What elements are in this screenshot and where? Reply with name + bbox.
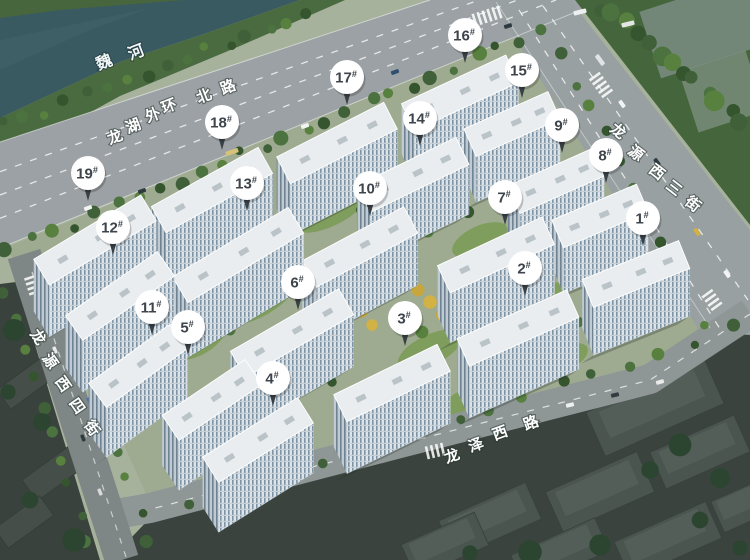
tree — [732, 540, 747, 555]
tree — [238, 30, 251, 43]
tree — [162, 60, 173, 71]
tree — [155, 183, 166, 194]
tree — [280, 18, 291, 29]
golden-tree — [423, 295, 437, 309]
tree — [318, 117, 330, 129]
tree — [409, 83, 420, 94]
tree — [514, 37, 525, 48]
tree — [62, 528, 85, 551]
scene-shape: 17 — [335, 70, 352, 87]
tree — [227, 41, 236, 50]
scene-shape: 19 — [76, 166, 93, 183]
tree — [423, 71, 437, 85]
tree — [727, 319, 740, 332]
tree — [183, 55, 193, 65]
tree — [685, 71, 698, 84]
scene-shape: # — [352, 69, 357, 79]
scene-shape: 3 — [397, 311, 405, 328]
tree — [29, 372, 39, 382]
tree — [490, 42, 498, 50]
scene-shape: 8 — [598, 148, 606, 165]
tree — [199, 42, 208, 51]
scene-shape: # — [189, 319, 194, 329]
scene-shape: # — [563, 117, 568, 127]
scene-shape: 12 — [101, 220, 118, 237]
tree — [625, 362, 635, 372]
tree — [0, 384, 15, 399]
tree — [586, 369, 596, 379]
site-plan-rendering: 龙湖外环北路龙源西三街龙源西四街龙泽西路魏河 16#15#17#14#18#9#… — [0, 0, 750, 560]
scene-shape: 2 — [517, 261, 525, 278]
scene-shape: # — [506, 189, 511, 199]
tree — [642, 35, 657, 50]
tree — [383, 88, 393, 98]
tree — [78, 512, 87, 521]
tree — [45, 224, 59, 238]
tree — [338, 106, 350, 118]
tree — [268, 25, 277, 34]
aerial-scene: 龙湖外环北路龙源西三街龙源西四街龙泽西路魏河 16#15#17#14#18#9#… — [0, 0, 750, 560]
tree — [22, 492, 39, 509]
tree — [62, 478, 71, 487]
scene-shape: # — [375, 180, 380, 190]
scene-shape: # — [227, 114, 232, 124]
tree — [70, 224, 79, 233]
tree — [122, 75, 132, 85]
tree — [589, 534, 610, 555]
tree — [691, 341, 699, 349]
scene-shape: # — [527, 62, 532, 72]
tree — [33, 413, 51, 431]
tree — [82, 86, 92, 96]
scene-shape: # — [425, 110, 430, 120]
scene-shape: # — [607, 147, 612, 157]
scene-shape: 7 — [497, 190, 505, 207]
scene-shape: 10 — [358, 181, 375, 198]
tree — [140, 535, 153, 548]
tree — [535, 24, 546, 35]
tree — [38, 402, 51, 415]
tree — [139, 509, 148, 518]
tree — [273, 131, 288, 146]
scene-shape: # — [470, 27, 475, 37]
scene-shape: # — [93, 165, 98, 175]
tree — [28, 232, 37, 241]
tree — [573, 82, 582, 91]
scene-shape: 5 — [180, 320, 188, 337]
scene-shape: 14 — [408, 111, 425, 128]
tree — [120, 472, 129, 481]
tree — [704, 90, 725, 111]
scene-shape: 11 — [141, 300, 157, 317]
scene-shape: # — [156, 299, 161, 309]
tree — [300, 8, 311, 19]
tree — [652, 348, 665, 361]
tree — [40, 111, 49, 120]
scene-shape: 16 — [453, 28, 470, 45]
scene-shape: # — [526, 260, 531, 270]
tree — [20, 345, 30, 355]
tree — [710, 468, 730, 488]
tree — [57, 94, 69, 106]
tree — [143, 70, 156, 83]
scene-shape: # — [299, 274, 304, 284]
scene-shape: 6 — [290, 275, 298, 292]
tree — [641, 461, 658, 478]
scene-shape: # — [406, 310, 411, 320]
tree — [669, 434, 692, 457]
tree — [368, 92, 380, 104]
tree — [263, 144, 272, 153]
tree — [730, 113, 747, 130]
tree — [184, 499, 194, 509]
tree — [56, 456, 66, 466]
scene-shape: 13 — [235, 176, 252, 193]
scene-shape: # — [274, 370, 279, 380]
scene-shape: 15 — [510, 63, 527, 80]
tree — [555, 47, 567, 59]
scene-shape: # — [118, 219, 123, 229]
scene-shape: # — [252, 175, 257, 185]
tree — [318, 459, 328, 469]
tree — [450, 67, 458, 75]
golden-tree — [366, 319, 378, 331]
scene-shape: # — [644, 210, 649, 220]
scene-shape: 1 — [635, 211, 643, 228]
tree — [3, 319, 25, 341]
tree — [602, 3, 620, 21]
scene-shape: 18 — [210, 115, 227, 132]
scene-shape: 9 — [554, 118, 562, 135]
tree — [692, 512, 709, 529]
tree — [103, 82, 113, 92]
tree — [700, 321, 709, 330]
tree — [16, 110, 28, 122]
tree — [583, 100, 595, 112]
